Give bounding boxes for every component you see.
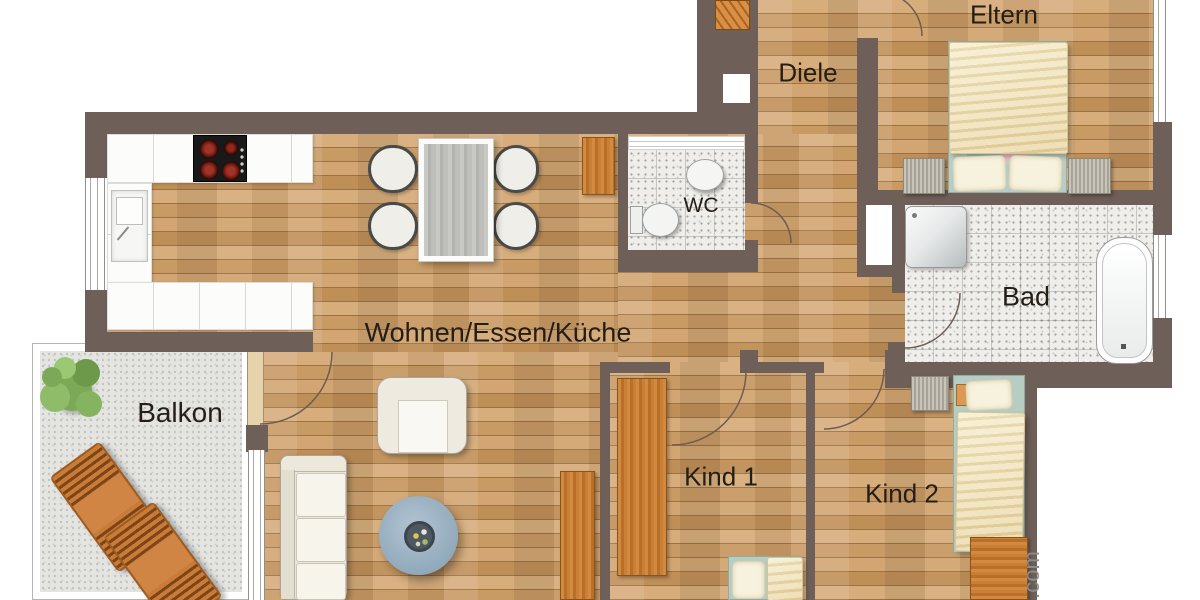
- wall: [758, 362, 824, 373]
- chair-icon: [368, 145, 418, 193]
- room-label-balkon: Balkon: [137, 397, 223, 429]
- sofa-icon: [280, 455, 347, 600]
- washbasin-icon: [686, 159, 724, 191]
- room-label-eltern: Eltern: [970, 0, 1038, 31]
- chair-icon: [368, 202, 418, 250]
- stove-icon: [193, 135, 247, 182]
- table-top: [424, 144, 488, 256]
- bed-pillow: [732, 561, 765, 599]
- wc-ventilation-strip: [628, 136, 745, 150]
- room-label-diele: Diele: [778, 58, 837, 89]
- toilet-bowl-icon: [642, 203, 679, 237]
- wall-pier: [246, 425, 268, 452]
- double-bed-icon: [948, 41, 1067, 193]
- wall-niche: [723, 74, 750, 103]
- wall: [618, 250, 757, 272]
- room-label-wohnen: Wohnen/Essen/Küche: [365, 318, 632, 349]
- wardrobe-icon: [617, 378, 667, 576]
- nightstand-icon: [911, 376, 949, 411]
- bathtub-drain: [1121, 344, 1126, 349]
- plant-foliage: [72, 359, 100, 387]
- wall: [85, 332, 313, 352]
- wall: [806, 373, 815, 600]
- plant-foliage: [76, 391, 102, 417]
- sofa-cushion: [296, 473, 346, 517]
- wall: [85, 112, 697, 134]
- nightstand-icon: [1068, 158, 1111, 194]
- sofa-cushion: [296, 563, 346, 600]
- balcony-door-threshold: [247, 352, 264, 427]
- entry-door-icon: [715, 0, 750, 30]
- bathtub-inner: [1102, 243, 1147, 358]
- wall: [740, 350, 758, 373]
- floor-plan: Wohnen/Essen/Küche Diele Eltern WC Bad B…: [0, 0, 1200, 600]
- window: [85, 178, 105, 290]
- coffee-table-icon: [404, 521, 435, 552]
- bed-pillow: [1008, 155, 1062, 192]
- single-bed-icon: [728, 556, 802, 600]
- wall: [885, 350, 905, 363]
- bed-duvet: [955, 411, 1025, 552]
- window: [248, 450, 265, 600]
- room-label-wc: WC: [684, 194, 719, 218]
- sofa-backrest: [281, 470, 295, 599]
- plant-foliage: [42, 367, 62, 387]
- sofa-cushion: [296, 518, 346, 562]
- bathtub-icon: [1096, 237, 1153, 364]
- room-label-kind1: Kind 1: [684, 462, 758, 493]
- room-label-bad: Bad: [1002, 282, 1050, 313]
- tall-cabinet-icon: [582, 137, 615, 195]
- shower-icon: [905, 206, 967, 268]
- armchair-icon: [377, 377, 467, 454]
- wall: [600, 362, 610, 600]
- single-bed-icon: [953, 375, 1025, 553]
- watermark: .com: [1019, 545, 1045, 600]
- nightstand-icon: [903, 158, 945, 194]
- wardrobe-icon: [560, 471, 595, 600]
- window: [1153, 235, 1166, 318]
- wall: [857, 38, 878, 191]
- dining-table-icon: [418, 138, 494, 262]
- bed-pillow: [965, 379, 1013, 411]
- room-label-kind2: Kind 2: [865, 479, 939, 510]
- kitchen-counter-icon: [107, 282, 313, 330]
- chair-icon: [493, 202, 539, 250]
- plant-icon: [40, 357, 105, 425]
- bed-pillow: [952, 155, 1006, 192]
- wall: [745, 133, 758, 203]
- wall: [85, 112, 107, 178]
- shaft-niche: [866, 205, 892, 265]
- bed-duvet: [767, 557, 803, 600]
- bed-duvet: [949, 42, 1068, 154]
- kitchen-sink-icon: [111, 190, 148, 262]
- wall: [1153, 122, 1172, 235]
- wall: [1153, 318, 1172, 388]
- armchair-seat: [398, 400, 448, 453]
- wall: [600, 362, 670, 373]
- wall: [892, 195, 905, 293]
- window: [1153, 0, 1166, 122]
- chair-icon: [493, 145, 539, 193]
